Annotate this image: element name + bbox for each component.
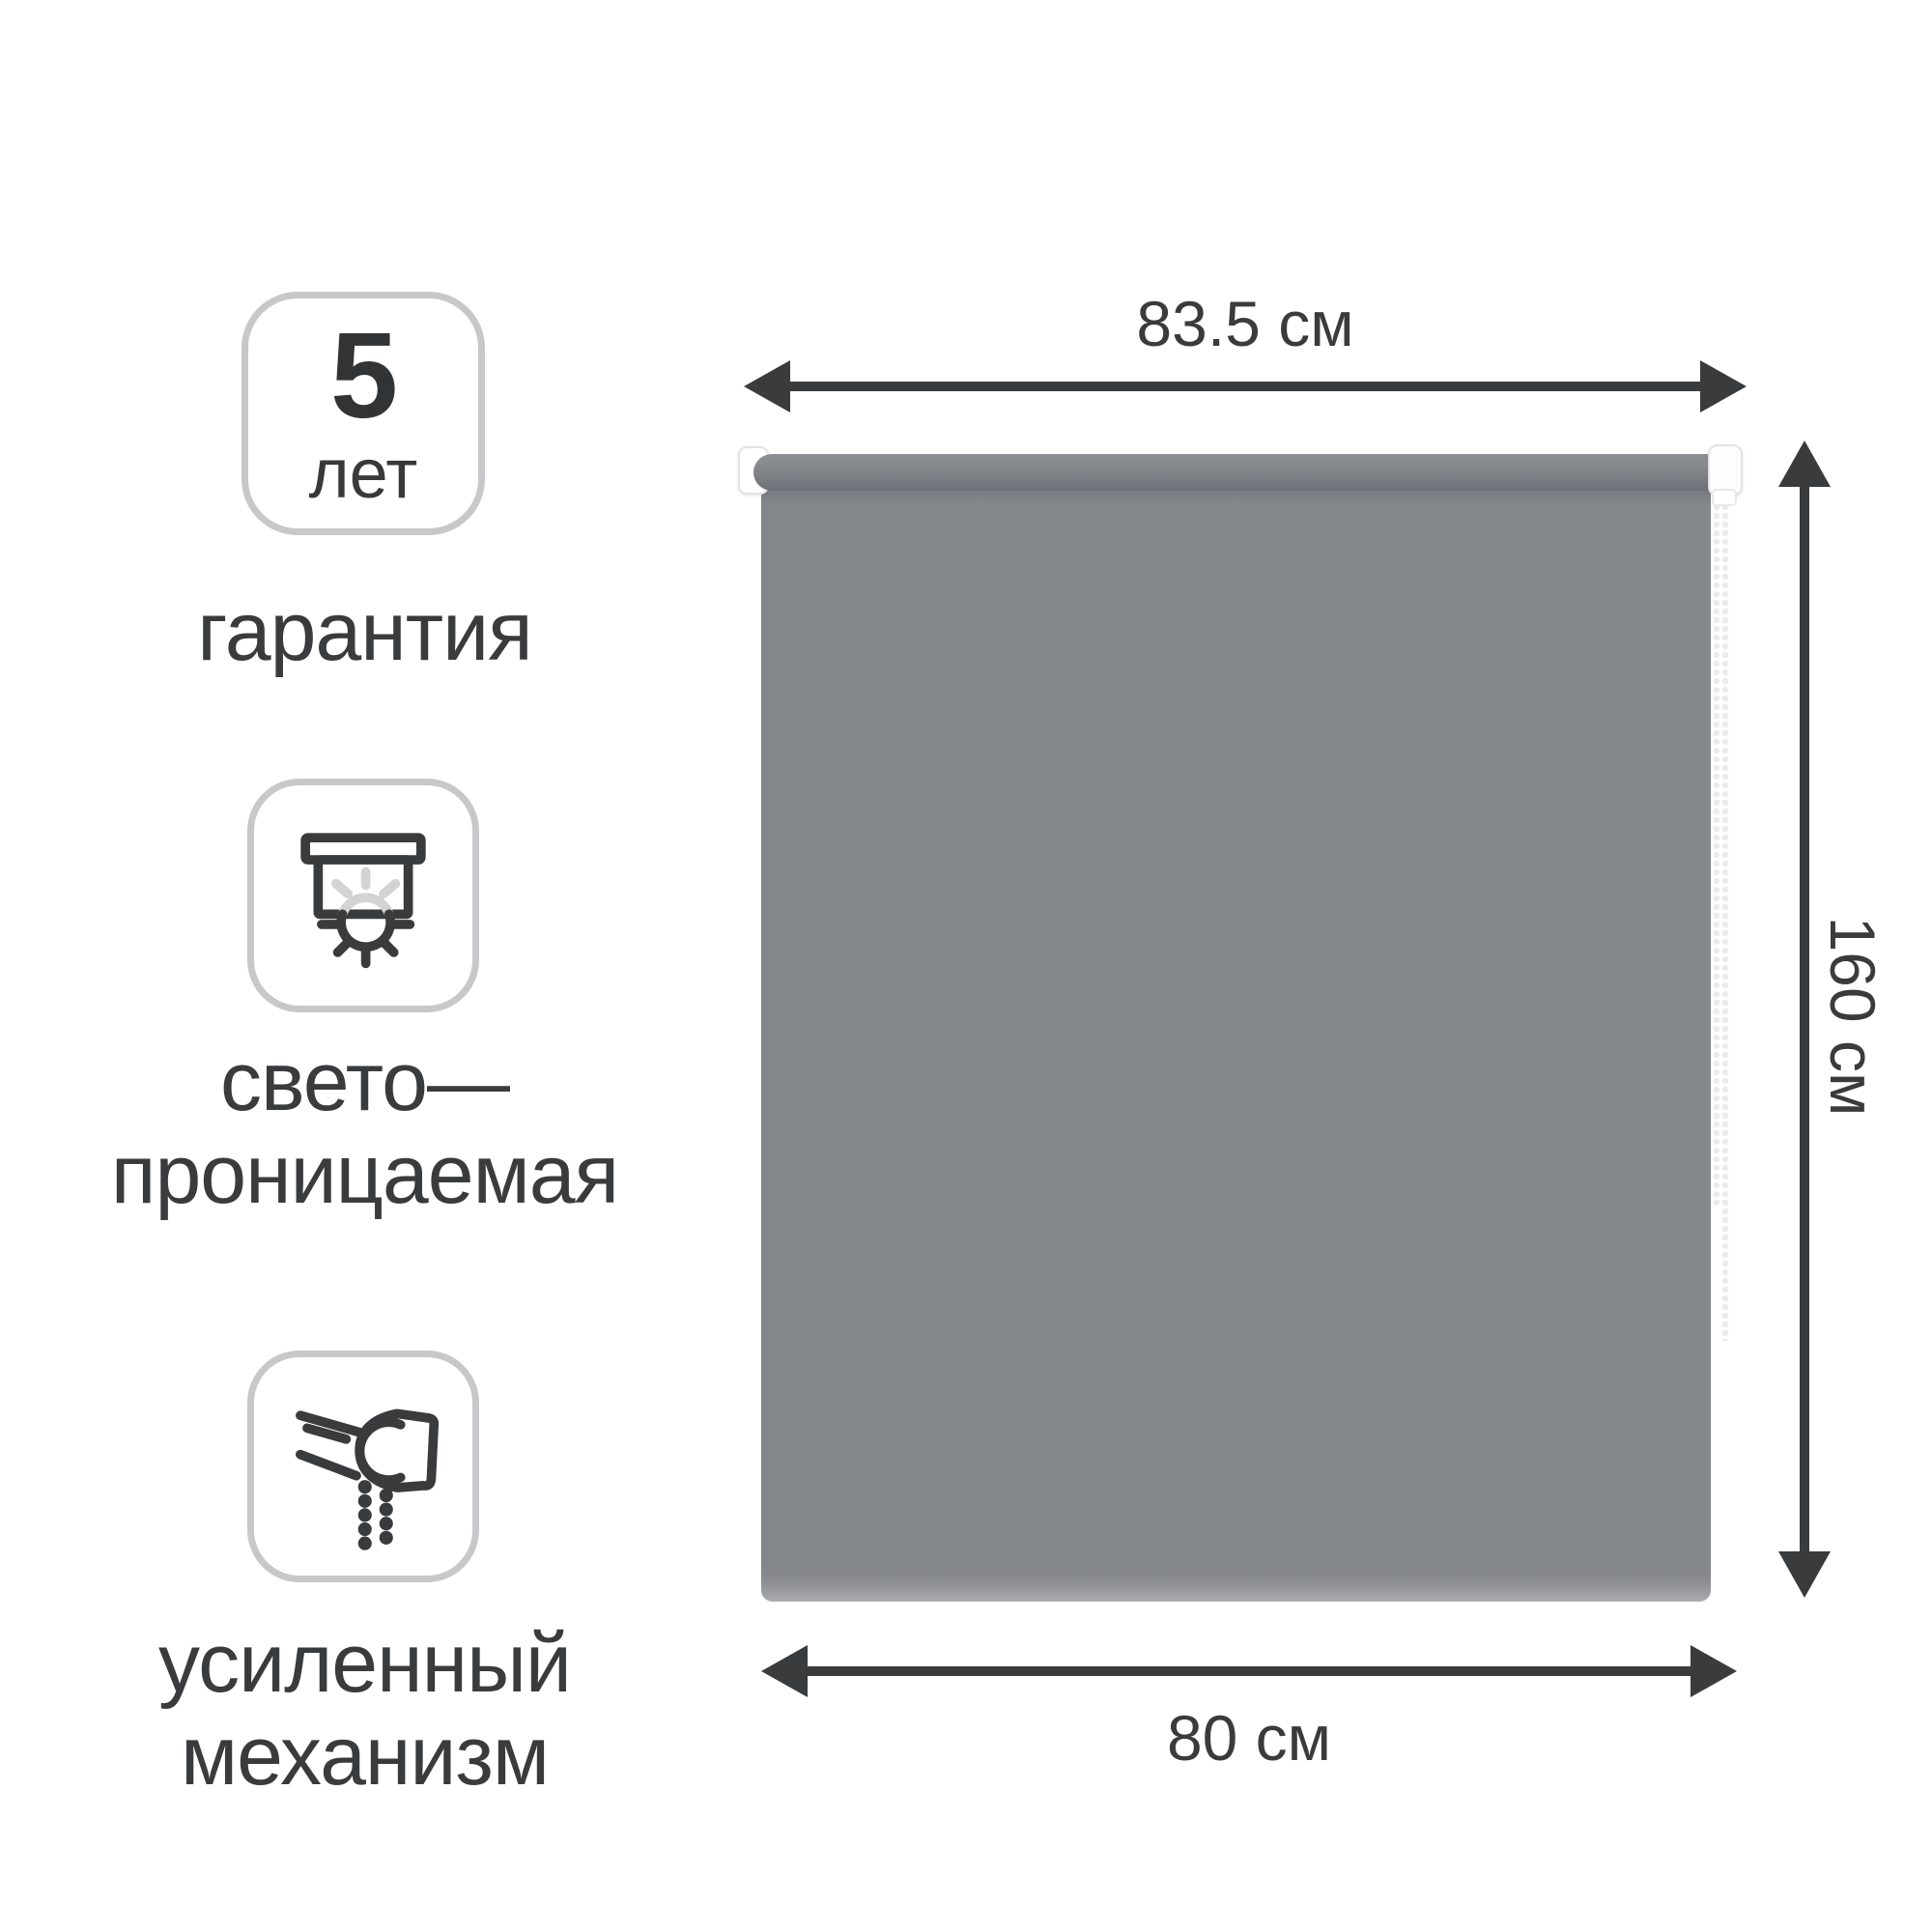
- light-permeable-label-line2: проницаемая: [14, 1128, 715, 1221]
- blind-fabric: [761, 488, 1711, 1602]
- bead-chain-strand: [1721, 495, 1729, 1341]
- blind-sun-icon: [278, 810, 448, 980]
- dimension-height-label: 160 см: [1819, 917, 1887, 1117]
- warranty-years-unit: лет: [309, 439, 418, 512]
- reinforced-mechanism-label: усиленный механизм: [53, 1617, 676, 1803]
- warranty-label: гарантия: [53, 585, 676, 678]
- reinforced-mechanism-label-line1: усиленный: [53, 1617, 676, 1710]
- roller-tube: [753, 454, 1715, 491]
- warranty-badge: 5 лет: [241, 292, 485, 535]
- bead-chain-strand: [1713, 495, 1720, 1206]
- fabric-width-dimension-arrow: [757, 1638, 1741, 1704]
- roller-chain-icon: [278, 1381, 448, 1551]
- dimension-full-width-label: 83.5 см: [740, 290, 1750, 357]
- warranty-years-number: 5: [330, 315, 396, 437]
- reinforced-mechanism-label-line2: механизм: [53, 1710, 676, 1803]
- reinforced-mechanism-badge: [247, 1350, 479, 1582]
- light-permeable-label: свето— проницаемая: [14, 1036, 715, 1221]
- light-permeable-label-line1: свето—: [14, 1036, 715, 1128]
- chain-holder: [1712, 489, 1737, 506]
- light-permeable-badge: [247, 779, 479, 1012]
- dimension-fabric-width-label: 80 см: [757, 1704, 1741, 1772]
- product-image-roller-blind: 5 лет гарантия свето— проницаемая: [0, 0, 1932, 1932]
- width-dimension-arrow: [740, 354, 1750, 419]
